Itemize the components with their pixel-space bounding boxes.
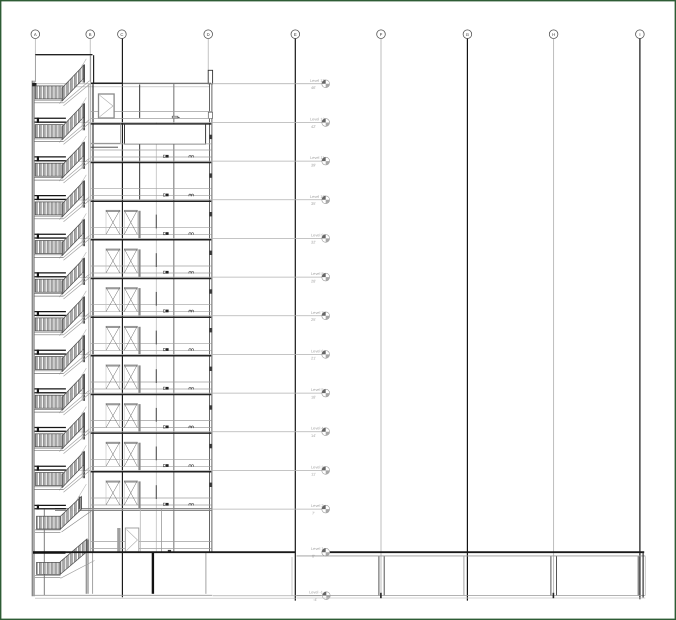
svg-text:32': 32'	[311, 240, 316, 245]
svg-text:F: F	[380, 32, 383, 37]
svg-text:Level 2: Level 2	[311, 503, 324, 508]
svg-text:H: H	[552, 32, 555, 37]
svg-text:C: C	[120, 32, 123, 37]
svg-text:7': 7'	[312, 510, 315, 515]
svg-text:Level 6: Level 6	[311, 348, 324, 353]
svg-text:42': 42'	[311, 124, 316, 129]
svg-text:21': 21'	[311, 356, 316, 361]
svg-text:11': 11'	[311, 472, 316, 477]
svg-text:Level 5: Level 5	[311, 387, 324, 392]
svg-text:D: D	[207, 32, 210, 37]
svg-text:E: E	[294, 32, 297, 37]
svg-text:39': 39'	[311, 162, 316, 167]
svg-text:G: G	[466, 32, 469, 37]
svg-text:B: B	[89, 32, 92, 37]
svg-text:35': 35'	[311, 201, 316, 206]
svg-text:28': 28'	[311, 278, 316, 283]
svg-text:Level 1: Level 1	[311, 546, 324, 551]
svg-text:Level 3: Level 3	[311, 464, 324, 469]
svg-text:I: I	[639, 32, 640, 37]
svg-text:Level 8: Level 8	[311, 271, 324, 276]
svg-text:Level -1: Level -1	[309, 590, 323, 595]
svg-text:25': 25'	[311, 317, 316, 322]
svg-text:Level 9: Level 9	[311, 232, 324, 237]
svg-text:Level 7: Level 7	[311, 310, 324, 315]
svg-text:18': 18'	[311, 394, 316, 399]
svg-text:A: A	[34, 32, 37, 37]
svg-text:14': 14'	[311, 433, 316, 438]
svg-text:46': 46'	[311, 85, 316, 90]
